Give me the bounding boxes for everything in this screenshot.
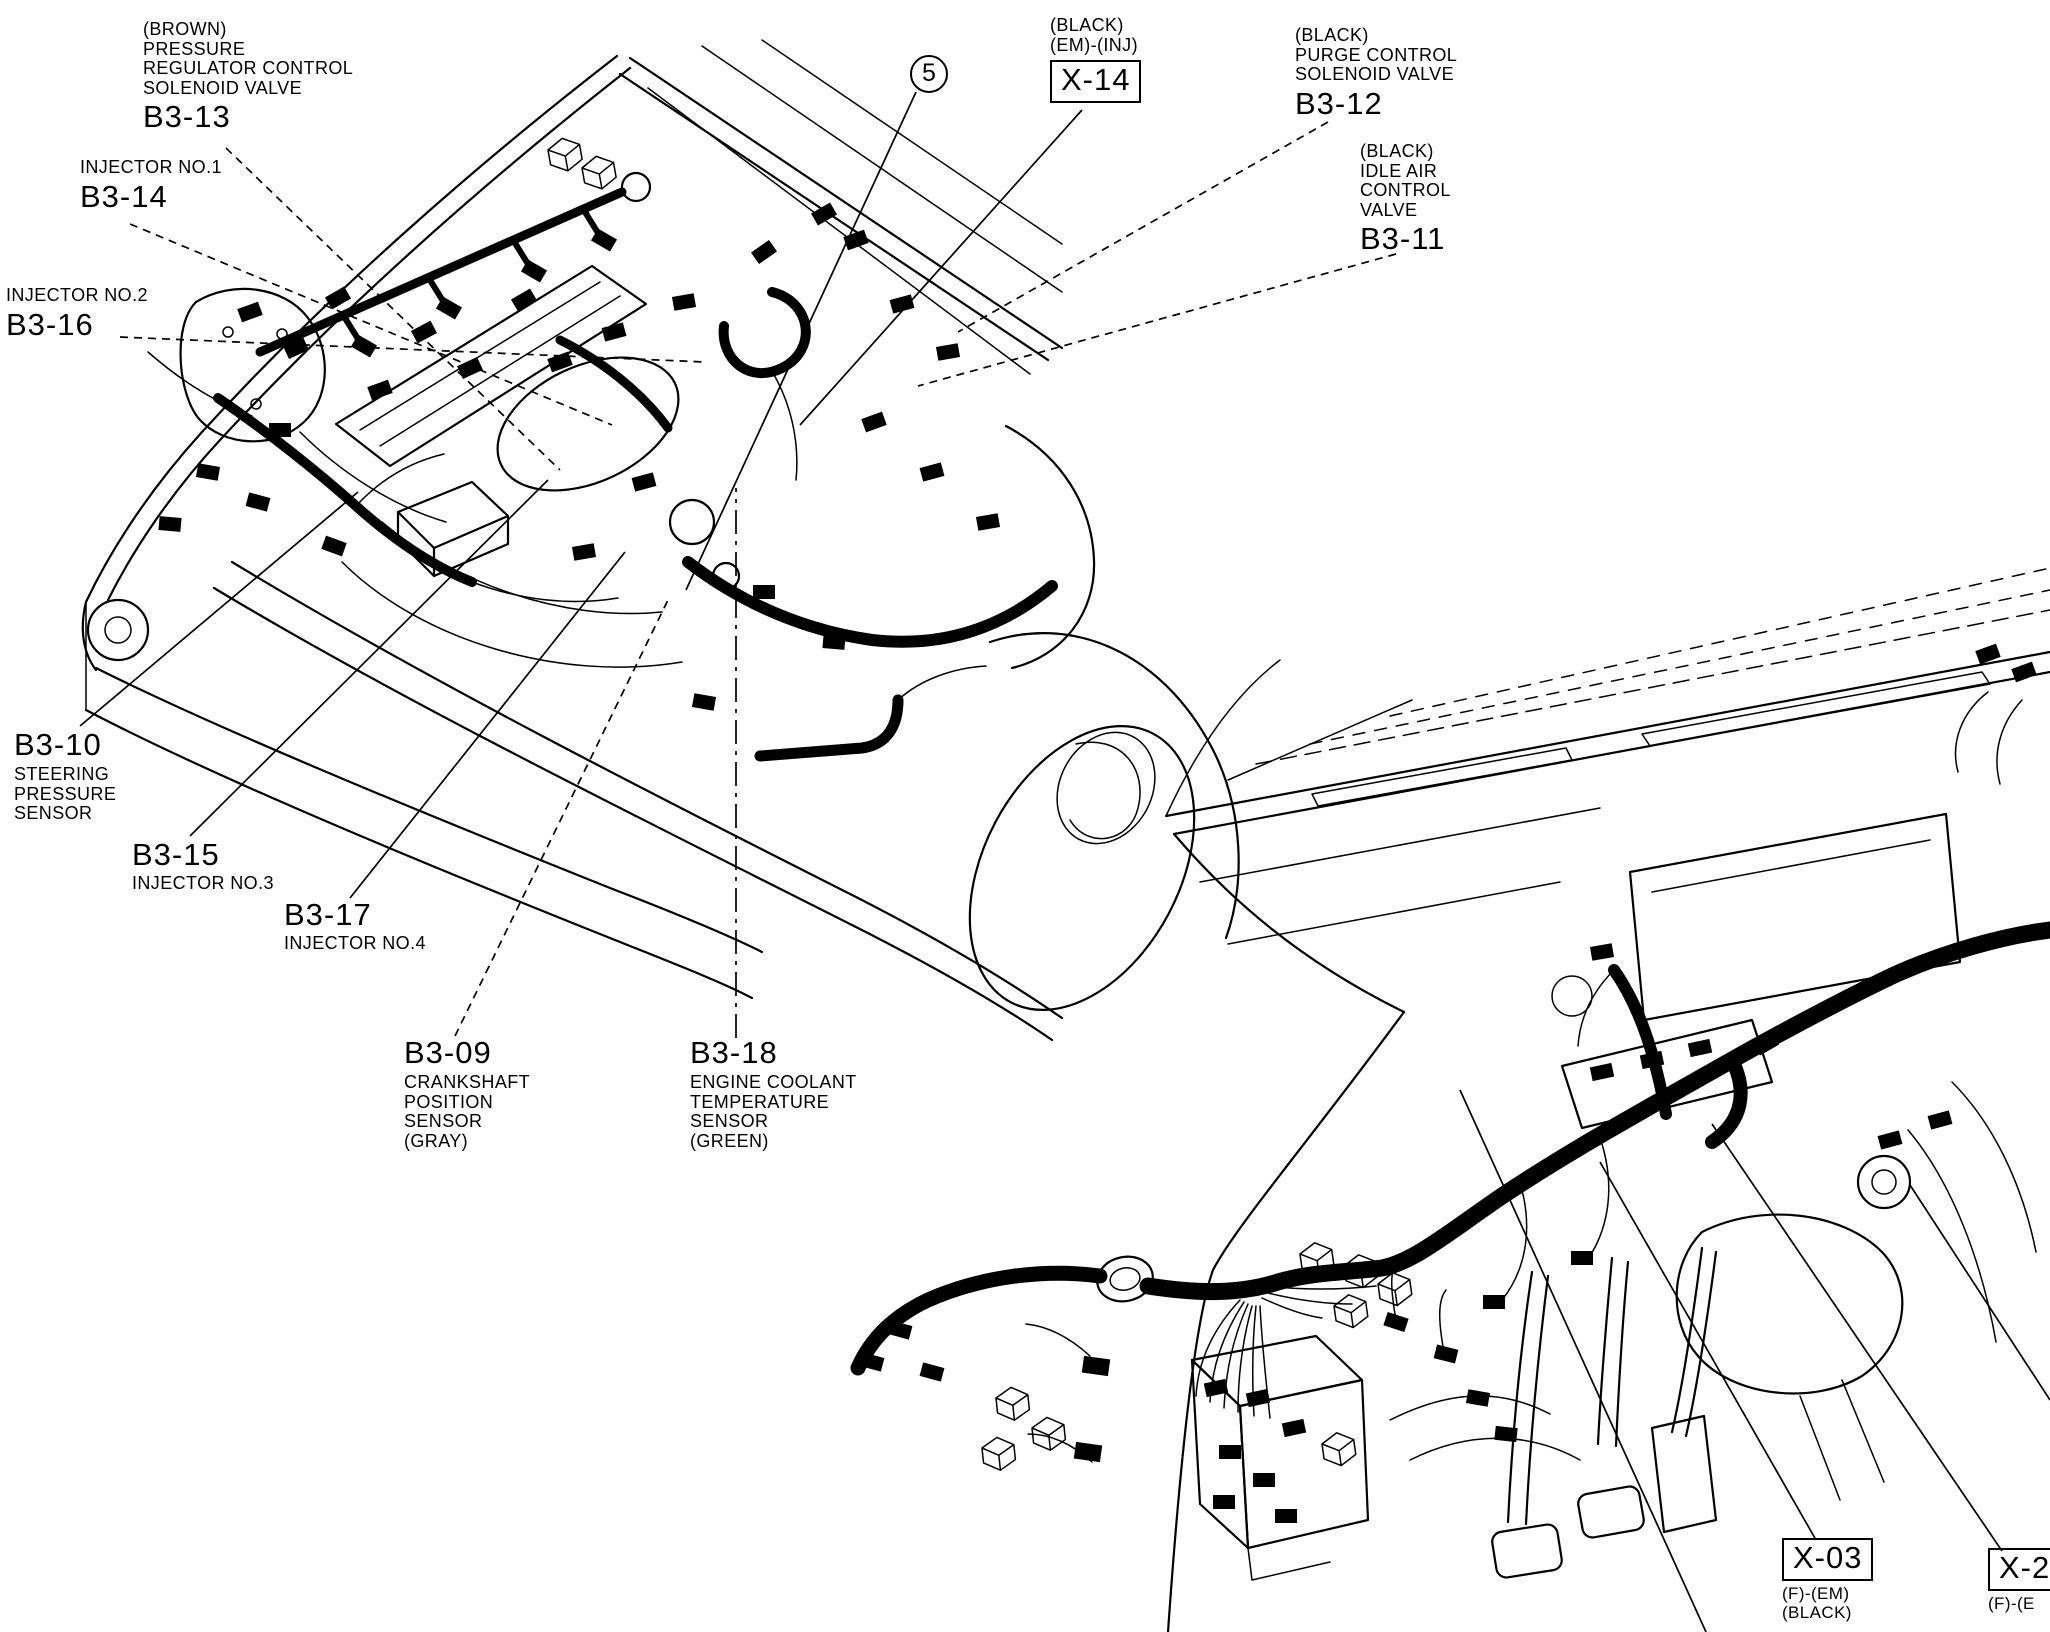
dashboard-illustration [858,568,2050,1632]
callout-x03: X-03 (F)-(EM) (BLACK) [1782,1538,1873,1622]
diagram-page: (BROWN) PRESSURE REGULATOR CONTROL SOLEN… [0,0,2050,1632]
note-line: VALVE [1360,201,1451,221]
note-line: CONTROL [1360,181,1451,201]
callout-injector-no4: B3-17 INJECTOR NO.4 [284,898,426,954]
note-line: INJECTOR NO.4 [284,934,426,954]
note-line: INJECTOR NO.2 [6,286,148,306]
note-line: CRANKSHAFT [404,1073,530,1093]
note-line: (F)-(E [1988,1595,2050,1614]
connector-code: B3-15 [132,838,274,872]
note-line: (BLACK) [1295,26,1457,46]
callout-injector-no1: INJECTOR NO.1 B3-14 [80,158,222,214]
note-line: INJECTOR NO.3 [132,874,274,894]
leader-lines [80,92,2050,1632]
note-line: SOLENOID VALVE [143,79,353,99]
note-line: PRESSURE [14,785,116,805]
callout-injector-no3: B3-15 INJECTOR NO.3 [132,838,274,894]
note-line: (BLACK) [1782,1604,1873,1623]
note-line: PRESSURE [143,40,353,60]
note-line: (BROWN) [143,20,353,40]
connector-code: B3-16 [6,308,148,342]
callout-x2-cutoff: X-2 (F)-(E [1988,1548,2050,1614]
note-line: (BLACK) [1050,16,1141,36]
dash-connectors [860,644,2037,1523]
connector-code: B3-17 [284,898,426,932]
diagram-line-art [0,0,2050,1632]
connector-code: B3-09 [404,1036,530,1070]
note-line: TEMPERATURE [690,1093,857,1113]
connector-code: B3-11 [1360,222,1451,256]
callout-x14: (BLACK) (EM)-(INJ) X-14 [1050,16,1141,103]
callout-crankshaft-position-sensor: B3-09 CRANKSHAFT POSITION SENSOR (GRAY) [404,1036,530,1151]
note-line: IDLE AIR [1360,162,1451,182]
circled-reference-5: 5 [910,55,948,93]
connector-code: B3-13 [143,100,353,134]
connector-code-boxed: X-14 [1050,60,1141,103]
note-line: (GRAY) [404,1132,530,1152]
connector-code: B3-18 [690,1036,857,1070]
callout-engine-coolant-temp-sensor: B3-18 ENGINE COOLANT TEMPERATURE SENSOR … [690,1036,857,1151]
note-line: (GREEN) [690,1132,857,1152]
note-line: (F)-(EM) [1782,1585,1873,1604]
note-line: STEERING [14,765,116,785]
note-line: SOLENOID VALVE [1295,65,1457,85]
engine-bay-illustration [83,40,1412,1048]
callout-idle-air-control-valve: (BLACK) IDLE AIR CONTROL VALVE B3-11 [1360,142,1451,256]
note-line: ENGINE COOLANT [690,1073,857,1093]
callout-steering-pressure-sensor: B3-10 STEERING PRESSURE SENSOR [14,728,116,824]
note-line: SENSOR [404,1112,530,1132]
note-line: (EM)-(INJ) [1050,36,1141,56]
note-line: SENSOR [690,1112,857,1132]
connector-code-boxed: X-2 [1988,1548,2050,1591]
connector-code: B3-12 [1295,87,1457,121]
callout-injector-no2: INJECTOR NO.2 B3-16 [6,286,148,342]
connector-code: B3-14 [80,180,222,214]
note-line: SENSOR [14,804,116,824]
connector-code: B3-10 [14,728,116,762]
note-line: POSITION [404,1093,530,1113]
note-line: INJECTOR NO.1 [80,158,222,178]
connector-code-boxed: X-03 [1782,1538,1873,1581]
note-line: REGULATOR CONTROL [143,59,353,79]
callout-pressure-regulator-solenoid: (BROWN) PRESSURE REGULATOR CONTROL SOLEN… [143,20,353,134]
note-line: (BLACK) [1360,142,1451,162]
note-line: PURGE CONTROL [1295,46,1457,66]
callout-purge-control-solenoid: (BLACK) PURGE CONTROL SOLENOID VALVE B3-… [1295,26,1457,121]
